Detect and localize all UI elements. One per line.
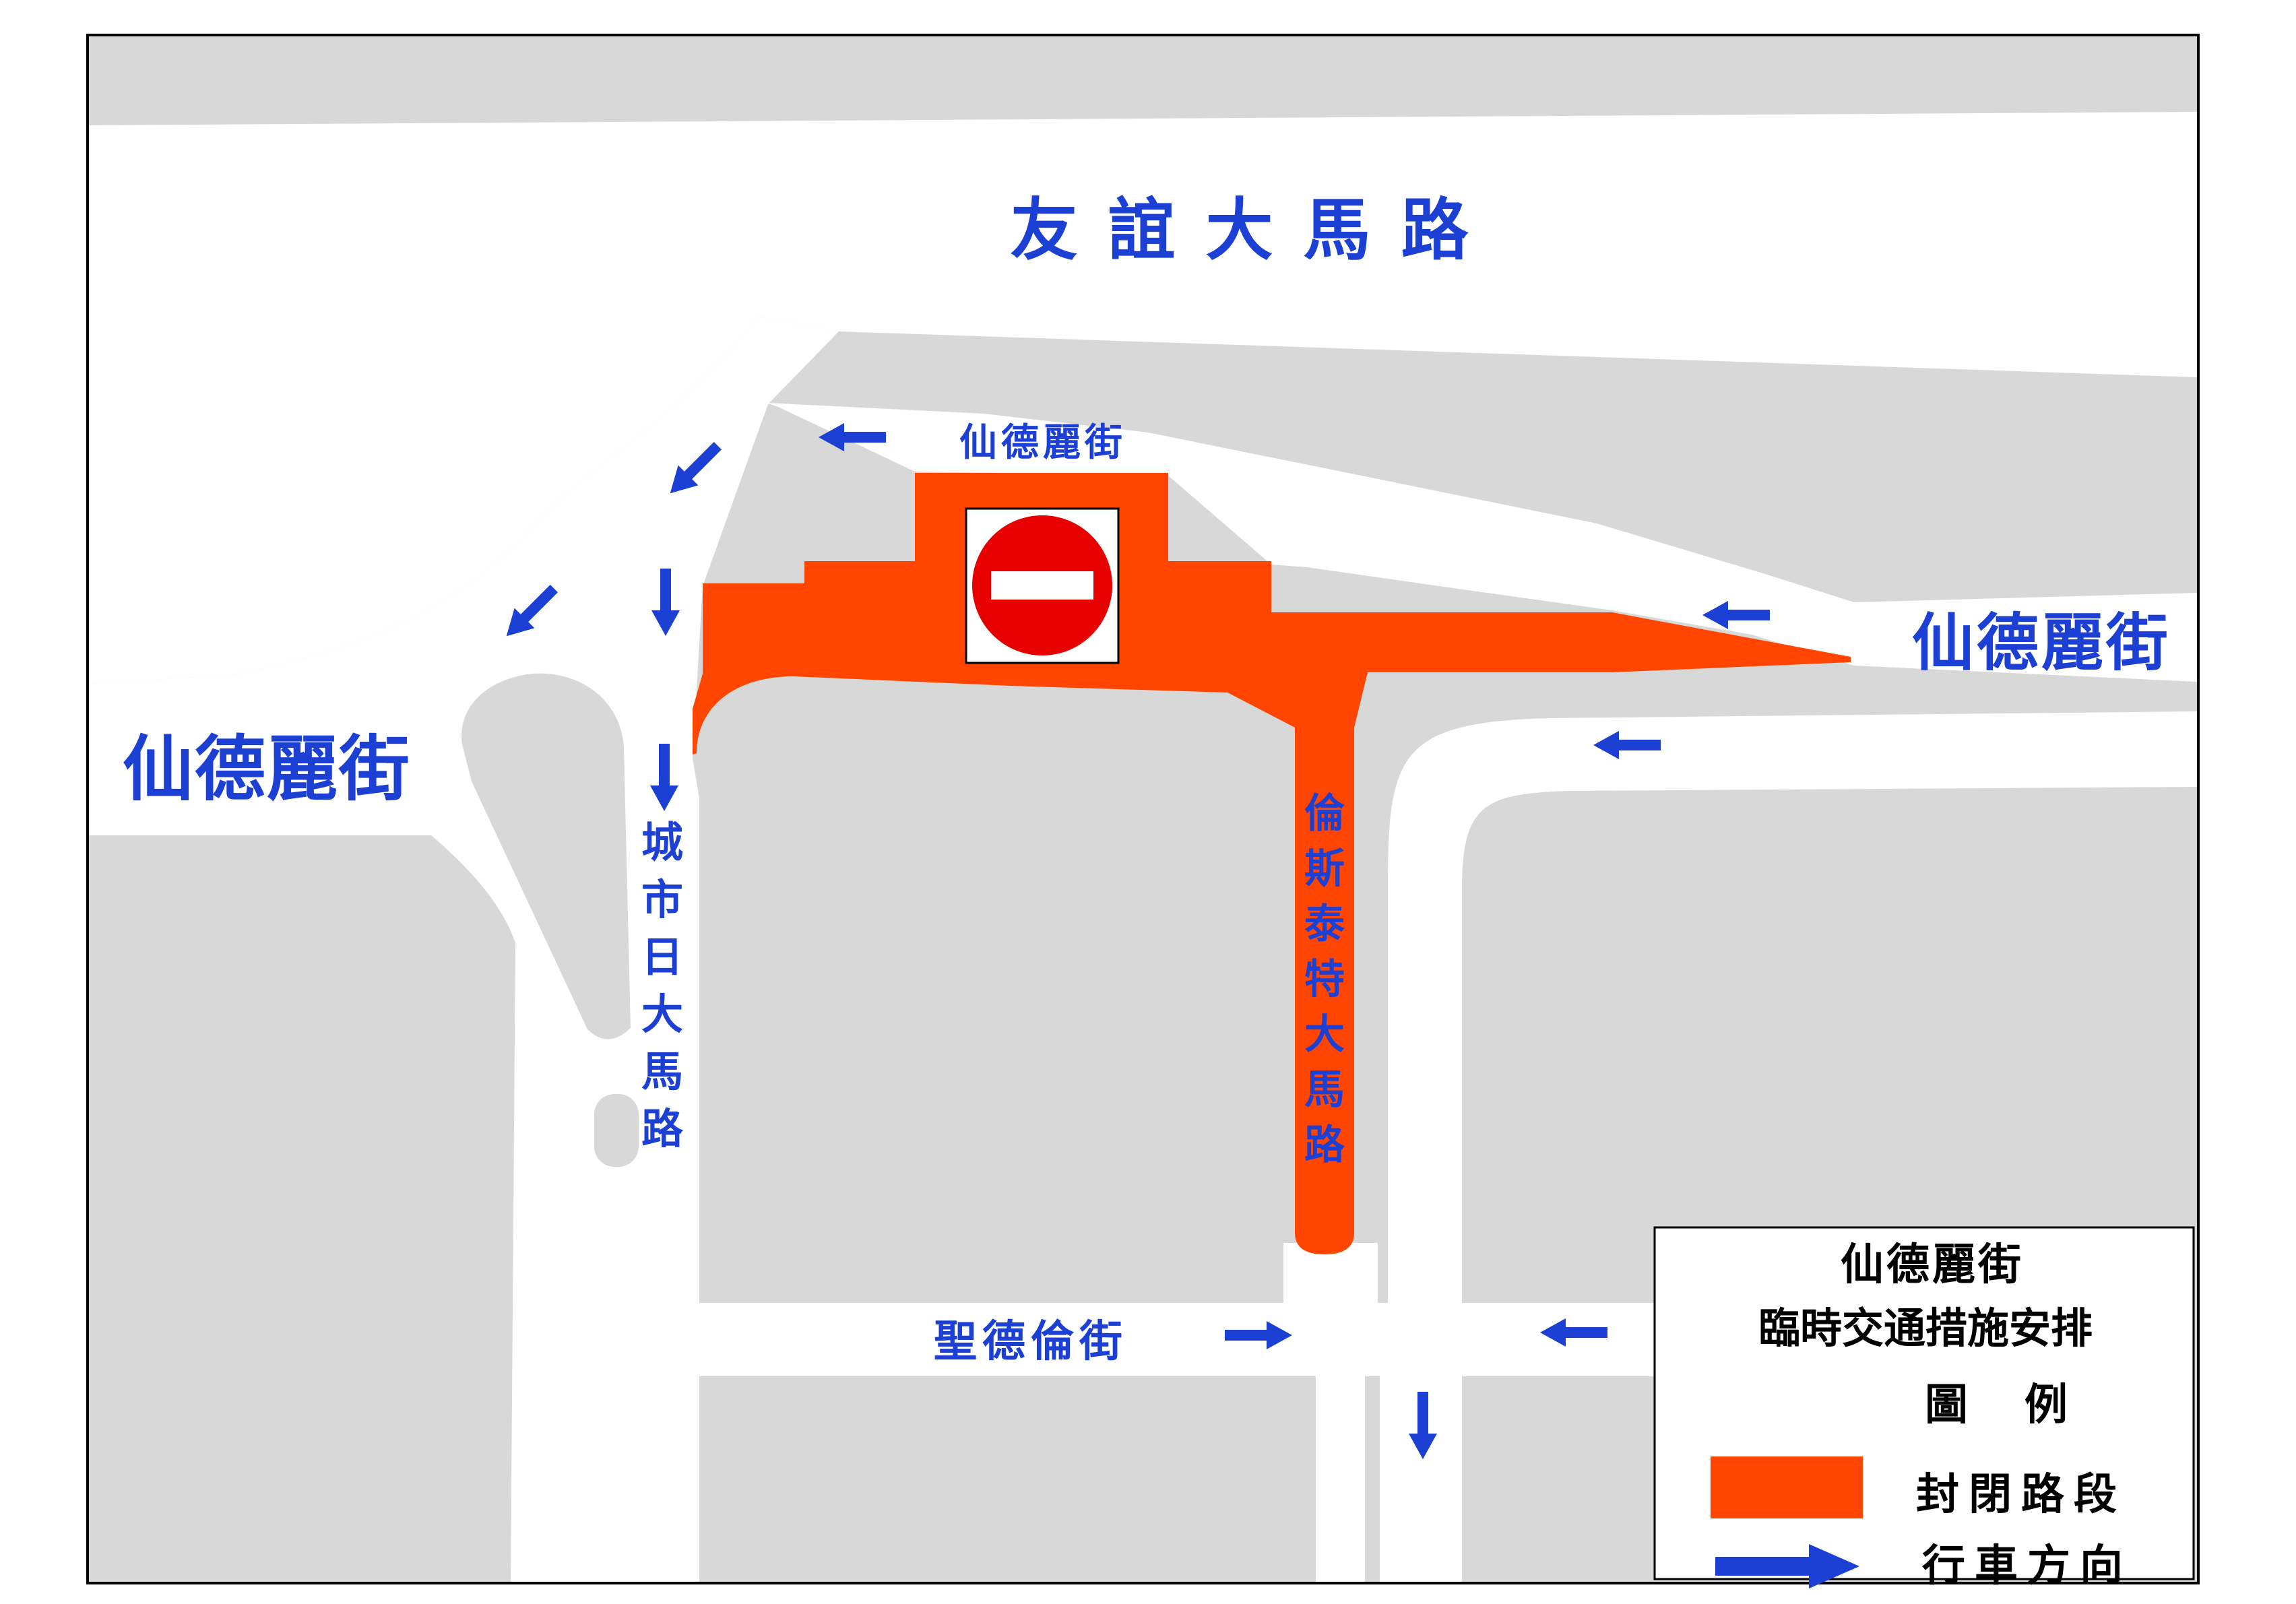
road-lunsitaite-south-west-lane: [1316, 1376, 1365, 1582]
legend-title-line1: 仙德麗街: [1841, 1241, 2024, 1289]
legend: 仙德麗街 臨時交通措施安排 圖 例 封閉路段 行車方向: [1655, 1227, 2194, 1590]
label-shengdelun-street: 聖德倫街: [934, 1318, 1128, 1366]
traffic-map-page: 友誼大馬路 仙德麗街 仙德麗街 仙德麗街 城市日大馬路 倫斯泰特大馬路 聖德倫街…: [0, 0, 2296, 1604]
label-xiandeli-small: 仙德麗街: [959, 422, 1126, 464]
legend-heading: 圖 例: [1925, 1381, 2074, 1429]
legend-closed-road-swatch: [1711, 1456, 1863, 1518]
label-youyi-road: 友誼大馬路: [1011, 193, 1499, 268]
island-median: [594, 1094, 639, 1167]
block-top-band: [89, 36, 2197, 125]
legend-closed-road-label: 封閉路段: [1916, 1471, 2126, 1518]
legend-direction-label: 行車方向: [1922, 1542, 2132, 1590]
legend-title-line2: 臨時交通措施安排: [1758, 1306, 2093, 1352]
no-entry-sign: [966, 509, 1118, 663]
label-lunsitaite-road: 倫斯泰特大馬路: [1304, 792, 1345, 1167]
traffic-map-canvas: 友誼大馬路 仙德麗街 仙德麗街 仙德麗街 城市日大馬路 倫斯泰特大馬路 聖德倫街…: [0, 0, 2296, 1604]
label-xiandeli-right: 仙德麗街: [1912, 609, 2171, 678]
road-shengdelun: [699, 1303, 1655, 1376]
label-xiandeli-left: 仙德麗街: [123, 730, 411, 809]
no-entry-bar: [991, 571, 1093, 600]
